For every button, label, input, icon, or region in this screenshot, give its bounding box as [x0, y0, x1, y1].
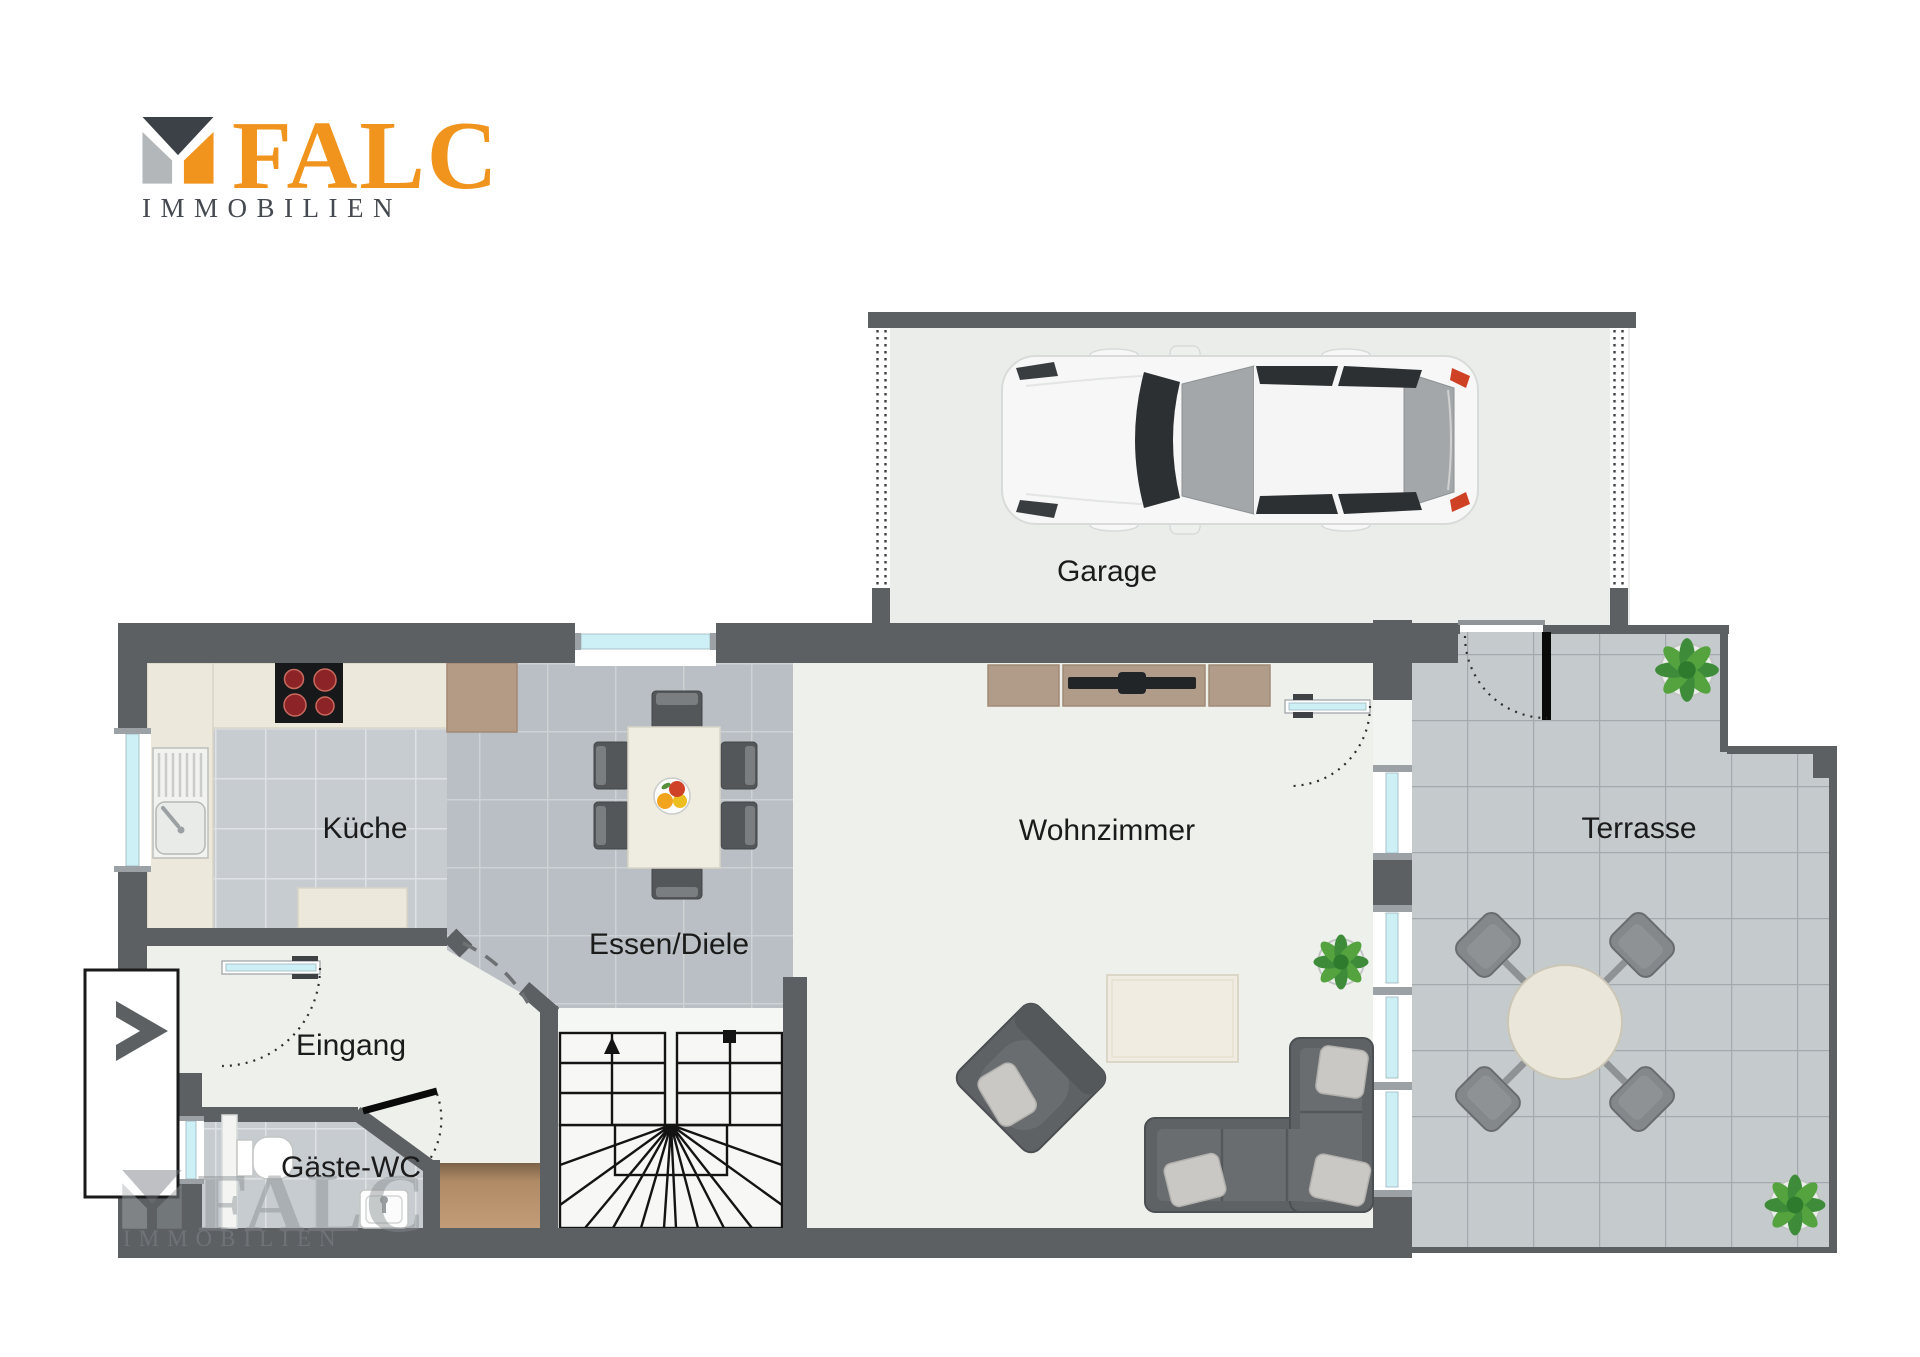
falc-watermark: FALC IMMOBILIEN: [122, 1157, 427, 1251]
room-label-garage: Garage: [1057, 555, 1157, 588]
stairwell-right-wall: [783, 977, 807, 1228]
tv-sideboard-icon: [988, 665, 1270, 706]
floorplan-canvas: FALC IMMOBILIEN: [0, 0, 1920, 1357]
stairwell-left-wall: [540, 1006, 558, 1228]
room-label-essen-diele: Essen/Diele: [589, 928, 749, 961]
logo-subtitle-text: IMMOBILIEN: [142, 193, 402, 223]
window: [575, 618, 716, 666]
wc-left-wall: [178, 1073, 202, 1118]
kitchen-bottom-wall: [118, 928, 447, 946]
top-wall: [713, 623, 1458, 663]
car-icon: [1002, 346, 1478, 534]
window: [114, 728, 151, 872]
kitchen-sink-icon: [153, 748, 208, 858]
garage-door-left: [872, 328, 890, 625]
right-wall-pier: [1373, 860, 1412, 905]
room-label-wohnzimmer: Wohnzimmer: [1019, 814, 1195, 847]
terrace-top-wall: [1543, 625, 1729, 634]
kitchen-sideboard: [298, 888, 407, 928]
entrance-door-icon: [85, 970, 178, 1197]
room-label-kueche: Küche: [322, 812, 407, 845]
window: [1373, 905, 1412, 1197]
rug: [1107, 975, 1238, 1062]
floorplan-page: FALC IMMOBILIEN: [0, 0, 1920, 1357]
falc-logo: FALC IMMOBILIEN: [142, 102, 500, 223]
terrace-top-wall: [1412, 625, 1460, 634]
cooktop-icon: [275, 663, 343, 723]
room-label-terrasse: Terrasse: [1581, 812, 1696, 845]
fruit-bowl-icon: [654, 778, 690, 814]
terrace-door-threshold: [1458, 620, 1545, 625]
falc-logo-icon: [142, 117, 213, 184]
watermark-subtitle-text: IMMOBILIEN: [123, 1226, 344, 1251]
kitchen-wood-cabinet: [447, 663, 517, 732]
plant-icon: [1655, 638, 1719, 702]
top-wall: [118, 623, 578, 663]
garage-top-wall: [868, 312, 1636, 328]
plant-icon: [1313, 934, 1368, 989]
terrace-bottom-edge: [1412, 1247, 1837, 1253]
plant-icon: [1765, 1175, 1826, 1236]
closet-shadow: [436, 1163, 540, 1181]
window: [1373, 765, 1412, 860]
room-label-eingang: Eingang: [296, 1029, 406, 1062]
terrace-right-wall: [1829, 757, 1837, 1252]
terrace-step-wall: [1720, 630, 1728, 752]
garage-room: [868, 312, 1636, 625]
right-wall-pier: [1373, 620, 1412, 700]
terrace-door-opening: [1373, 700, 1412, 765]
garage-door-right: [1610, 328, 1628, 625]
